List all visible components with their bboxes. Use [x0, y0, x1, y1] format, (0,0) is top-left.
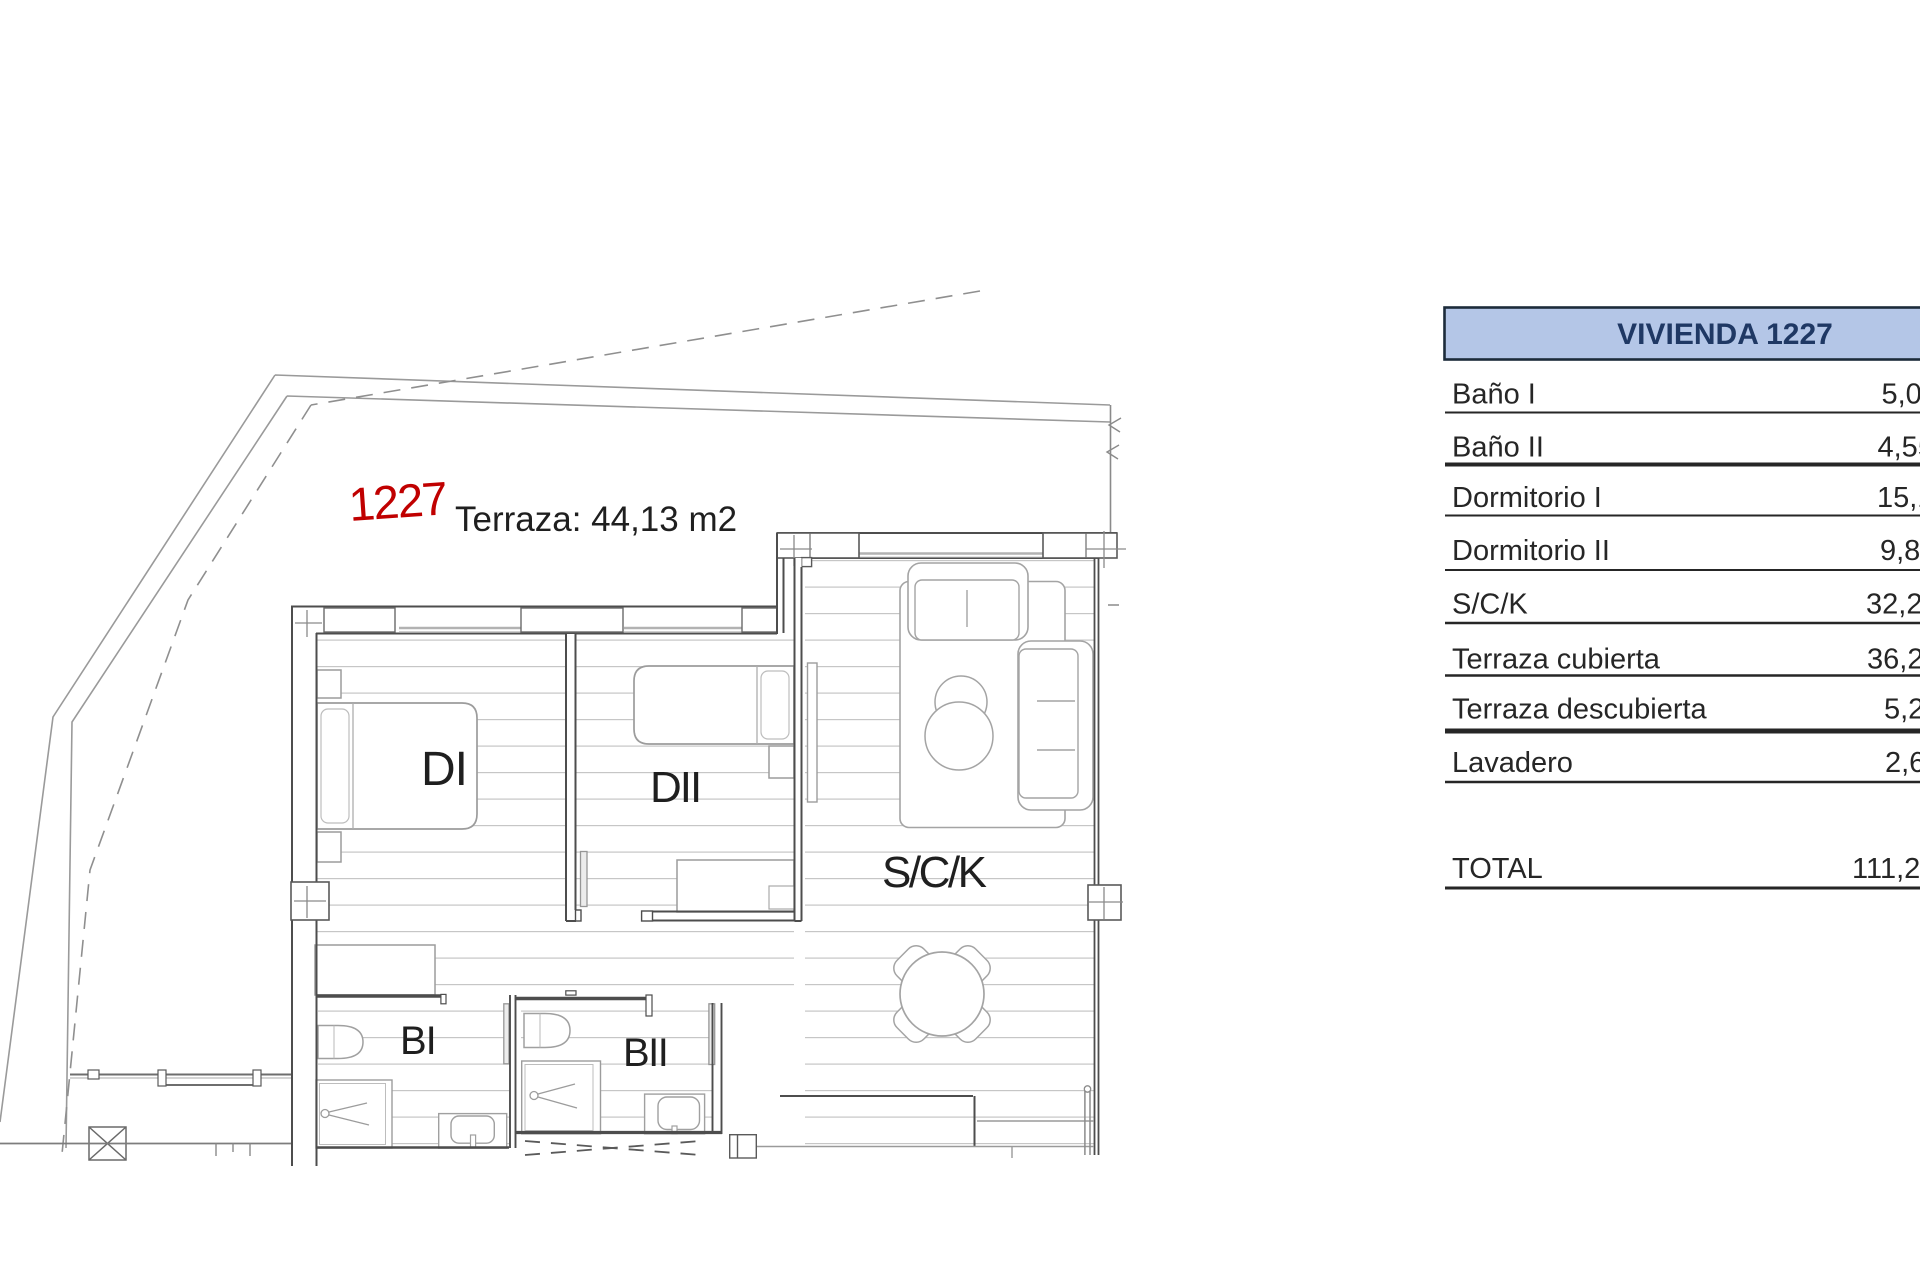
- svg-text:5,25: 5,25: [1884, 693, 1920, 725]
- svg-text:S/C/K: S/C/K: [1452, 589, 1528, 621]
- svg-text:15,15: 15,15: [1877, 482, 1920, 514]
- svg-text:36,25: 36,25: [1867, 644, 1920, 676]
- svg-text:TOTAL: TOTAL: [1452, 853, 1543, 885]
- svg-text:S/C/K: S/C/K: [882, 848, 987, 897]
- svg-text:9,85: 9,85: [1880, 535, 1920, 567]
- svg-text:4,55: 4,55: [1878, 431, 1920, 463]
- svg-text:Terraza descubierta: Terraza descubierta: [1452, 693, 1708, 725]
- svg-text:5,05: 5,05: [1882, 378, 1920, 410]
- svg-text:32,25: 32,25: [1866, 589, 1920, 621]
- svg-text:111,25: 111,25: [1852, 853, 1920, 885]
- svg-text:DII: DII: [650, 763, 700, 812]
- svg-text:VIVIENDA 1227: VIVIENDA 1227: [1617, 318, 1833, 351]
- svg-text:BII: BII: [623, 1031, 667, 1075]
- svg-text:Terraza cubierta: Terraza cubierta: [1452, 644, 1661, 676]
- svg-text:Dormitorio II: Dormitorio II: [1452, 535, 1610, 567]
- svg-text:2,60: 2,60: [1885, 747, 1920, 779]
- svg-text:Terraza: 44,13 m2: Terraza: 44,13 m2: [455, 500, 737, 539]
- svg-text:Dormitorio I: Dormitorio I: [1452, 482, 1602, 514]
- svg-text:Baño II: Baño II: [1452, 431, 1544, 463]
- svg-text:DI: DI: [421, 743, 467, 796]
- svg-text:BI: BI: [400, 1019, 436, 1063]
- svg-text:Lavadero: Lavadero: [1452, 747, 1573, 779]
- svg-text:1227: 1227: [347, 471, 448, 531]
- svg-text:Baño I: Baño I: [1452, 378, 1536, 410]
